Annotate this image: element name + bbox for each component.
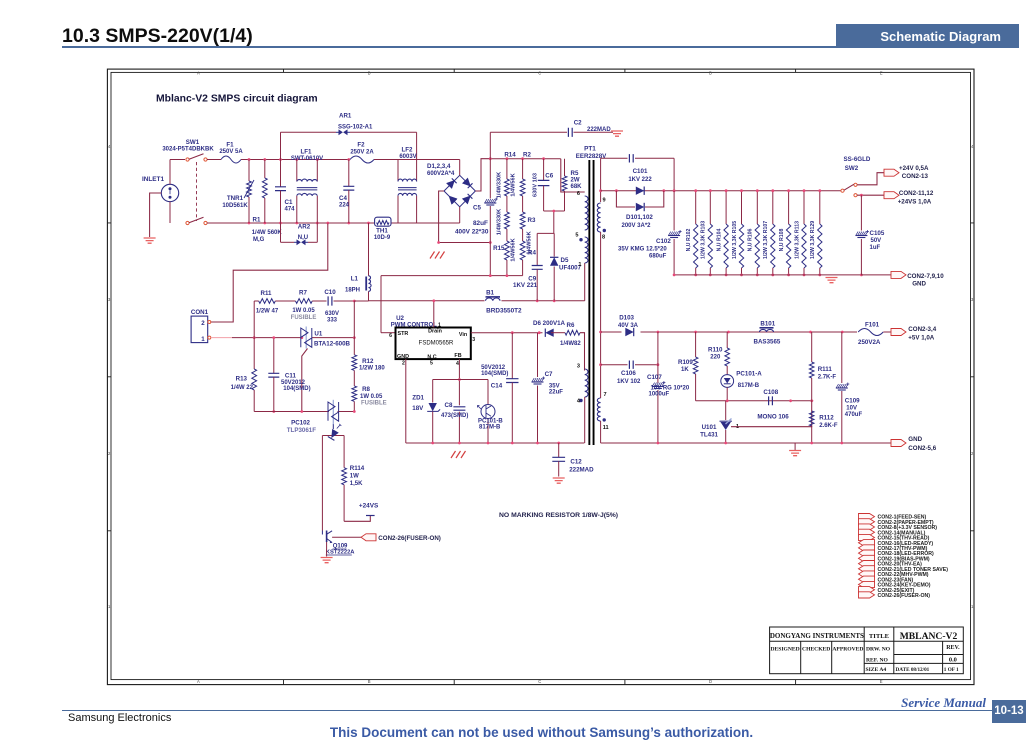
- svg-text:Vin: Vin: [459, 332, 467, 338]
- svg-text:1KV 222: 1KV 222: [628, 177, 652, 183]
- svg-text:R7: R7: [299, 290, 307, 297]
- svg-text:1/4W 560K: 1/4W 560K: [252, 230, 283, 236]
- svg-text:A: A: [197, 679, 200, 684]
- svg-text:C8: C8: [445, 402, 453, 409]
- svg-text:6003V: 6003V: [399, 154, 416, 160]
- svg-text:630V 103: 630V 103: [533, 173, 539, 197]
- svg-text:1KV 221: 1KV 221: [513, 282, 538, 289]
- svg-text:C7: C7: [545, 371, 553, 378]
- svg-text:CON2-26(FUSER-ON): CON2-26(FUSER-ON): [378, 535, 441, 542]
- svg-text:CON2-3,4: CON2-3,4: [908, 326, 936, 333]
- svg-text:SS-6GLD: SS-6GLD: [844, 156, 871, 163]
- svg-text:3024-P5T4DBKBK: 3024-P5T4DBKBK: [162, 147, 214, 153]
- svg-text:KST2222A: KST2222A: [326, 550, 355, 556]
- svg-text:SIZE A4: SIZE A4: [866, 667, 887, 673]
- svg-text:R3: R3: [528, 217, 536, 224]
- svg-text:10D-9: 10D-9: [374, 235, 391, 241]
- svg-text:R12: R12: [362, 358, 374, 365]
- svg-text:104(SMD): 104(SMD): [283, 386, 310, 392]
- svg-text:630V: 630V: [325, 311, 339, 317]
- svg-text:1/4W82: 1/4W82: [560, 341, 581, 347]
- svg-text:F1: F1: [226, 142, 234, 149]
- svg-text:1W: 1W: [350, 474, 359, 480]
- svg-text:0.0: 0.0: [949, 656, 957, 663]
- svg-text:N,U R106: N,U R106: [748, 228, 754, 251]
- svg-text:1uF: 1uF: [870, 245, 881, 251]
- svg-text:200V 3A*2: 200V 3A*2: [622, 223, 652, 229]
- svg-text:BAS3565: BAS3565: [754, 339, 781, 346]
- svg-text:5: 5: [430, 361, 433, 367]
- svg-text:C: C: [538, 71, 541, 76]
- svg-text:474: 474: [285, 207, 296, 213]
- svg-text:D1,2,3,4: D1,2,3,4: [427, 163, 451, 170]
- svg-text:1: 1: [578, 262, 581, 268]
- svg-text:F2: F2: [357, 142, 365, 149]
- svg-text:N.C: N.C: [427, 354, 436, 360]
- svg-text:1/2W 3,3K R103: 1/2W 3,3K R103: [701, 221, 707, 259]
- svg-text:MBLANC-V2: MBLANC-V2: [900, 631, 958, 642]
- svg-text:R2: R2: [523, 152, 531, 159]
- svg-text:82uF: 82uF: [473, 220, 488, 227]
- svg-text:CHECKED: CHECKED: [802, 647, 830, 653]
- svg-text:B: B: [368, 71, 371, 76]
- svg-text:FB: FB: [454, 353, 461, 359]
- svg-text:7: 7: [604, 392, 607, 398]
- svg-text:600V2A*4: 600V2A*4: [427, 171, 455, 177]
- svg-text:2: 2: [402, 361, 405, 367]
- svg-text:N,U: N,U: [298, 235, 308, 241]
- svg-text:TL431: TL431: [700, 432, 718, 439]
- svg-text:1W 0.05: 1W 0.05: [292, 308, 315, 314]
- svg-text:PC101-A: PC101-A: [736, 371, 762, 378]
- svg-text:B101: B101: [760, 321, 775, 328]
- svg-text:+24V 0,5A: +24V 0,5A: [899, 165, 929, 172]
- svg-text:FUSIBLE: FUSIBLE: [361, 400, 387, 406]
- svg-text:LF1: LF1: [300, 149, 312, 156]
- svg-text:C102: C102: [656, 238, 671, 245]
- svg-text:U2: U2: [396, 315, 404, 322]
- svg-text:1/2W 180: 1/2W 180: [359, 366, 385, 372]
- svg-text:R112: R112: [819, 415, 834, 422]
- svg-text:40V 3A: 40V 3A: [618, 323, 639, 329]
- svg-text:DONGYANG INSTRUMENTS: DONGYANG INSTRUMENTS: [770, 632, 864, 640]
- svg-text:10D561K: 10D561K: [222, 203, 248, 209]
- svg-text:R15: R15: [493, 245, 505, 252]
- svg-text:B: B: [368, 679, 371, 684]
- svg-text:E: E: [880, 71, 883, 76]
- svg-text:1KV 102: 1KV 102: [617, 379, 641, 385]
- svg-text:2: 2: [201, 320, 205, 327]
- svg-text:A: A: [197, 71, 200, 76]
- svg-text:N,U R102: N,U R102: [686, 228, 692, 251]
- svg-text:18V: 18V: [412, 405, 424, 412]
- svg-text:D: D: [709, 679, 712, 684]
- svg-text:+5V 1,0A: +5V 1,0A: [908, 335, 935, 342]
- svg-text:35V KMG 12.5*20: 35V KMG 12.5*20: [618, 247, 667, 253]
- svg-text:GND: GND: [397, 354, 409, 360]
- svg-text:400V 22*30: 400V 22*30: [455, 229, 489, 236]
- svg-text:C6: C6: [545, 173, 553, 180]
- svg-text:1/2W 47: 1/2W 47: [256, 309, 279, 315]
- svg-text:R14: R14: [504, 152, 516, 159]
- svg-text:R109: R109: [678, 359, 693, 366]
- svg-text:R111: R111: [818, 366, 833, 373]
- svg-text:250V2A: 250V2A: [858, 339, 881, 346]
- svg-text:22uF: 22uF: [549, 390, 563, 396]
- svg-text:PWM CONTROL: PWM CONTROL: [391, 322, 437, 328]
- svg-text:EER2828V: EER2828V: [576, 153, 607, 160]
- svg-text:D6 200V1A: D6 200V1A: [533, 320, 566, 327]
- svg-text:1/4W330K: 1/4W330K: [497, 172, 503, 198]
- svg-text:1 OF 1: 1 OF 1: [944, 667, 959, 673]
- svg-text:L1: L1: [351, 276, 359, 283]
- svg-text:REF. NO: REF. NO: [866, 657, 889, 663]
- svg-text:N,U R104: N,U R104: [717, 228, 723, 251]
- svg-text:CON2-26(FUSER-ON): CON2-26(FUSER-ON): [878, 593, 931, 599]
- svg-text:STR: STR: [398, 331, 409, 337]
- svg-text:4: 4: [456, 361, 459, 367]
- svg-text:C: C: [538, 679, 541, 684]
- svg-text:6: 6: [577, 191, 580, 197]
- svg-text:10V: 10V: [846, 406, 857, 412]
- svg-text:CON2-11,12: CON2-11,12: [899, 190, 934, 197]
- svg-text:C105: C105: [870, 230, 885, 237]
- svg-text:BRD3550T2: BRD3550T2: [486, 308, 522, 315]
- svg-text:50V2012: 50V2012: [281, 380, 306, 386]
- svg-text:1/4W56K: 1/4W56K: [511, 173, 517, 196]
- svg-text:F101: F101: [865, 322, 880, 329]
- svg-text:250V 2A: 250V 2A: [350, 150, 374, 156]
- svg-text:680uF: 680uF: [649, 254, 667, 260]
- svg-text:C1: C1: [285, 199, 293, 206]
- svg-text:1K: 1K: [681, 367, 689, 373]
- svg-text:CON1: CON1: [191, 309, 209, 316]
- svg-text:C101: C101: [633, 168, 648, 175]
- svg-text:AR1: AR1: [339, 113, 352, 120]
- svg-text:1/4W56K: 1/4W56K: [511, 238, 517, 261]
- svg-text:470uF: 470uF: [845, 412, 863, 418]
- svg-text:250V 5A: 250V 5A: [219, 149, 243, 155]
- svg-text:TLP3061F: TLP3061F: [287, 427, 316, 434]
- svg-text:C109: C109: [845, 398, 860, 405]
- svg-text:LF2: LF2: [401, 147, 413, 154]
- svg-text:R1: R1: [253, 217, 261, 224]
- svg-text:PC102: PC102: [291, 420, 310, 427]
- svg-text:333: 333: [327, 318, 338, 324]
- svg-text:222MAD: 222MAD: [569, 467, 594, 474]
- svg-text:C107: C107: [647, 374, 662, 381]
- svg-text:DATE 08/12/01: DATE 08/12/01: [896, 667, 930, 673]
- svg-text:11: 11: [603, 425, 609, 431]
- svg-text:1/2W 3,3K R113: 1/2W 3,3K R113: [794, 221, 800, 259]
- svg-text:B1: B1: [486, 290, 494, 297]
- svg-text:D5: D5: [561, 257, 569, 264]
- svg-text:1: 1: [201, 336, 205, 343]
- svg-text:C10: C10: [324, 289, 336, 296]
- svg-text:817M-B: 817M-B: [479, 425, 501, 431]
- svg-text:M,G: M,G: [253, 237, 265, 243]
- svg-text:3: 3: [577, 364, 580, 370]
- svg-text:D103: D103: [619, 315, 634, 322]
- svg-text:1/2W 3,3K R129: 1/2W 3,3K R129: [810, 221, 816, 259]
- svg-text:817M-B: 817M-B: [738, 383, 760, 389]
- svg-text:5: 5: [575, 233, 578, 239]
- svg-text:TITLE: TITLE: [869, 633, 890, 640]
- svg-text:SSG-102-A1: SSG-102-A1: [338, 125, 373, 131]
- svg-text:2W: 2W: [571, 178, 580, 184]
- svg-text:REV.: REV.: [946, 645, 960, 651]
- svg-text:C14: C14: [491, 383, 503, 390]
- svg-text:ZD1: ZD1: [412, 395, 424, 402]
- svg-text:Drain: Drain: [428, 329, 442, 335]
- svg-text:+24VS: +24VS: [359, 503, 379, 510]
- svg-text:6: 6: [389, 333, 392, 339]
- svg-text:N,U R108: N,U R108: [779, 228, 785, 251]
- svg-text:E: E: [880, 679, 883, 684]
- svg-text:3: 3: [472, 337, 475, 343]
- svg-text:PT1: PT1: [584, 146, 596, 153]
- svg-text:C12: C12: [570, 459, 582, 466]
- svg-text:C2: C2: [574, 120, 582, 127]
- svg-text:FSDM0565R: FSDM0565R: [419, 341, 454, 347]
- svg-text:NO MARKING RESISTOR 1/8W-J(5%): NO MARKING RESISTOR 1/8W-J(5%): [499, 512, 618, 519]
- svg-text:68K: 68K: [571, 184, 583, 190]
- svg-text:C4: C4: [339, 195, 347, 202]
- svg-text:R5: R5: [571, 170, 579, 177]
- svg-text:222MAD: 222MAD: [587, 127, 611, 133]
- svg-text:1/4W 22: 1/4W 22: [231, 385, 254, 391]
- svg-text:R110: R110: [708, 347, 723, 354]
- svg-text:2.6K-F: 2.6K-F: [819, 423, 838, 429]
- svg-text:1/2W 3,3K R105: 1/2W 3,3K R105: [732, 221, 738, 259]
- svg-text:C11: C11: [285, 373, 297, 380]
- svg-text:+24VS 1,0A: +24VS 1,0A: [898, 199, 932, 206]
- svg-text:MONO 106: MONO 106: [757, 414, 789, 421]
- svg-text:50V: 50V: [871, 238, 882, 244]
- svg-text:CON2-13: CON2-13: [902, 173, 929, 180]
- svg-text:GND: GND: [912, 281, 926, 288]
- svg-text:R114: R114: [350, 465, 365, 472]
- svg-text:C5: C5: [473, 205, 481, 212]
- svg-text:C106: C106: [621, 370, 636, 377]
- svg-text:R13: R13: [236, 376, 248, 383]
- svg-text:FUSIBLE: FUSIBLE: [291, 315, 317, 321]
- svg-text:Mblanc-V2 SMPS circuit diagram: Mblanc-V2 SMPS circuit diagram: [156, 94, 318, 105]
- svg-text:U101: U101: [702, 424, 717, 431]
- svg-text:R11: R11: [260, 290, 272, 297]
- svg-text:2.7K-F: 2.7K-F: [818, 375, 837, 381]
- svg-text:DRW. NO: DRW. NO: [866, 647, 891, 653]
- svg-text:TNR1: TNR1: [227, 195, 244, 202]
- svg-text:1,5K: 1,5K: [350, 481, 363, 487]
- svg-text:BTA12-600B: BTA12-600B: [314, 341, 351, 348]
- svg-text:104(SMD): 104(SMD): [481, 371, 508, 377]
- svg-text:1/2W 3,3K R107: 1/2W 3,3K R107: [763, 221, 769, 259]
- svg-text:CON2-7,9,10: CON2-7,9,10: [907, 273, 944, 280]
- svg-text:CON2-5,6: CON2-5,6: [908, 445, 936, 452]
- svg-text:D101,102: D101,102: [626, 214, 653, 221]
- svg-text:1/4W330K: 1/4W330K: [497, 209, 503, 235]
- svg-text:APPROVED: APPROVED: [832, 647, 863, 653]
- svg-text:1: 1: [438, 323, 441, 329]
- svg-text:INLET1: INLET1: [142, 176, 164, 183]
- svg-text:GND: GND: [908, 436, 922, 443]
- svg-text:U1: U1: [314, 331, 322, 338]
- svg-text:C108: C108: [763, 389, 778, 396]
- svg-text:SW1: SW1: [186, 139, 200, 146]
- svg-text:D: D: [709, 71, 712, 76]
- svg-text:1W 0.05: 1W 0.05: [360, 394, 383, 400]
- svg-text:224: 224: [339, 203, 350, 209]
- svg-text:9: 9: [603, 198, 606, 204]
- svg-text:8: 8: [602, 235, 605, 241]
- svg-text:473(SMD): 473(SMD): [441, 413, 468, 419]
- svg-text:R6: R6: [567, 322, 575, 329]
- svg-text:TH1: TH1: [376, 228, 388, 235]
- svg-text:R4: R4: [528, 250, 536, 257]
- svg-text:SWT-0610V: SWT-0610V: [291, 156, 323, 162]
- svg-text:1000uF: 1000uF: [649, 392, 670, 398]
- svg-text:18PH: 18PH: [345, 288, 360, 294]
- svg-text:220: 220: [710, 355, 721, 361]
- svg-text:AR2: AR2: [298, 224, 311, 231]
- svg-text:DESIGNED: DESIGNED: [770, 647, 799, 653]
- svg-text:R8: R8: [362, 386, 370, 393]
- svg-text:SW2: SW2: [845, 165, 859, 172]
